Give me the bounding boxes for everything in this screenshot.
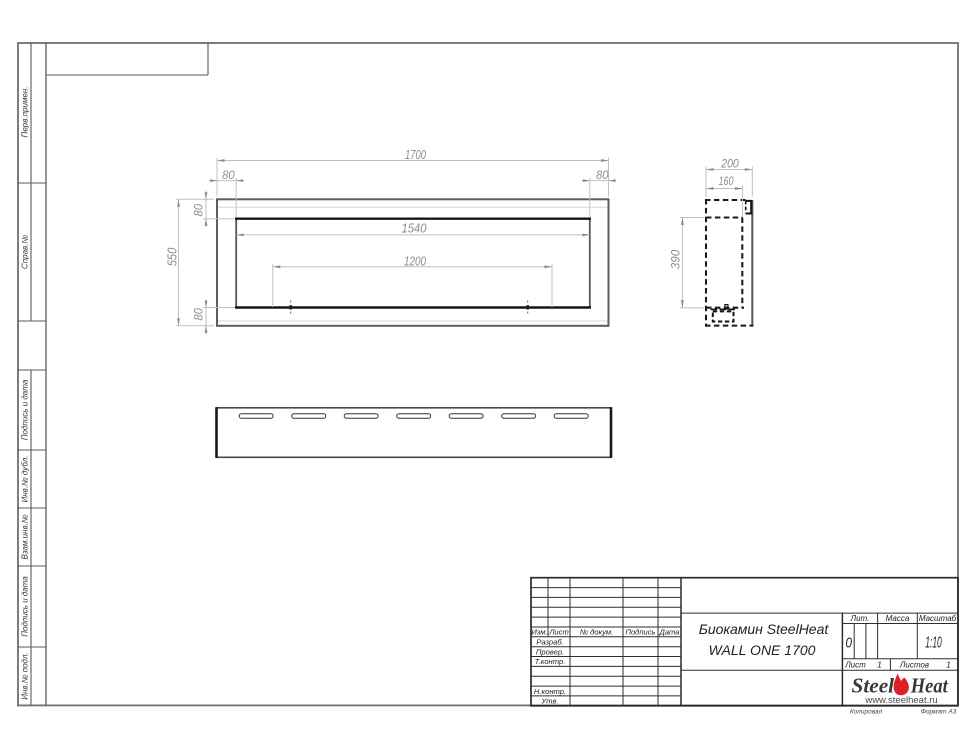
- svg-text:Масса: Масса: [886, 614, 910, 623]
- svg-text:№ докум.: № докум.: [580, 628, 613, 637]
- svg-text:Т.контр.: Т.контр.: [535, 657, 566, 666]
- svg-text:Копировал: Копировал: [850, 709, 883, 716]
- svg-text:Лист: Лист: [548, 628, 569, 637]
- svg-text:80: 80: [191, 308, 205, 321]
- svg-text:160: 160: [719, 174, 734, 188]
- svg-text:1: 1: [877, 659, 882, 669]
- svg-text:Инв.№ дубл.: Инв.№ дубл.: [21, 456, 30, 503]
- svg-text:Steel: Steel: [852, 673, 895, 697]
- svg-text:550: 550: [166, 248, 180, 267]
- svg-text:390: 390: [669, 249, 683, 269]
- svg-text:Подпись: Подпись: [625, 628, 655, 637]
- svg-text:Масштаб: Масштаб: [919, 614, 957, 623]
- svg-text:Heat: Heat: [910, 673, 949, 697]
- svg-text:Формат А3: Формат А3: [921, 709, 957, 716]
- svg-text:WALL ONE 1700: WALL ONE 1700: [709, 642, 816, 658]
- svg-text:Лит.: Лит.: [850, 614, 870, 623]
- svg-text:www.steelheat.ru: www.steelheat.ru: [864, 695, 937, 706]
- svg-text:1:10: 1:10: [925, 635, 942, 652]
- svg-text:1200: 1200: [404, 255, 426, 269]
- svg-text:Н.контр.: Н.контр.: [534, 687, 566, 696]
- svg-text:Перв.примен.: Перв.примен.: [21, 87, 30, 138]
- svg-text:Утв.: Утв.: [540, 697, 558, 706]
- svg-text:80: 80: [191, 204, 205, 217]
- svg-text:80: 80: [222, 168, 235, 182]
- svg-text:Подпись и дата: Подпись и дата: [21, 379, 30, 440]
- svg-text:Разраб.: Разраб.: [536, 638, 563, 647]
- svg-text:Взам.инв.№: Взам.инв.№: [21, 514, 30, 559]
- svg-text:Справ.№: Справ.№: [21, 235, 30, 269]
- svg-text:Изм.: Изм.: [531, 628, 547, 637]
- svg-text:Подпись и дата: Подпись и дата: [21, 576, 30, 637]
- svg-text:0: 0: [846, 634, 853, 651]
- svg-text:Инв.№ подл.: Инв.№ подл.: [21, 652, 30, 699]
- svg-text:1700: 1700: [405, 148, 426, 162]
- svg-text:Лист: Лист: [844, 660, 866, 669]
- svg-text:Биокамин SteelHeat: Биокамин SteelHeat: [699, 621, 830, 637]
- svg-text:80: 80: [596, 168, 609, 182]
- svg-text:1540: 1540: [402, 222, 427, 236]
- svg-text:Листов: Листов: [899, 660, 929, 669]
- svg-text:Провер.: Провер.: [536, 647, 564, 656]
- svg-text:200: 200: [720, 157, 739, 171]
- svg-text:Дата: Дата: [658, 628, 679, 637]
- svg-text:1: 1: [946, 659, 951, 669]
